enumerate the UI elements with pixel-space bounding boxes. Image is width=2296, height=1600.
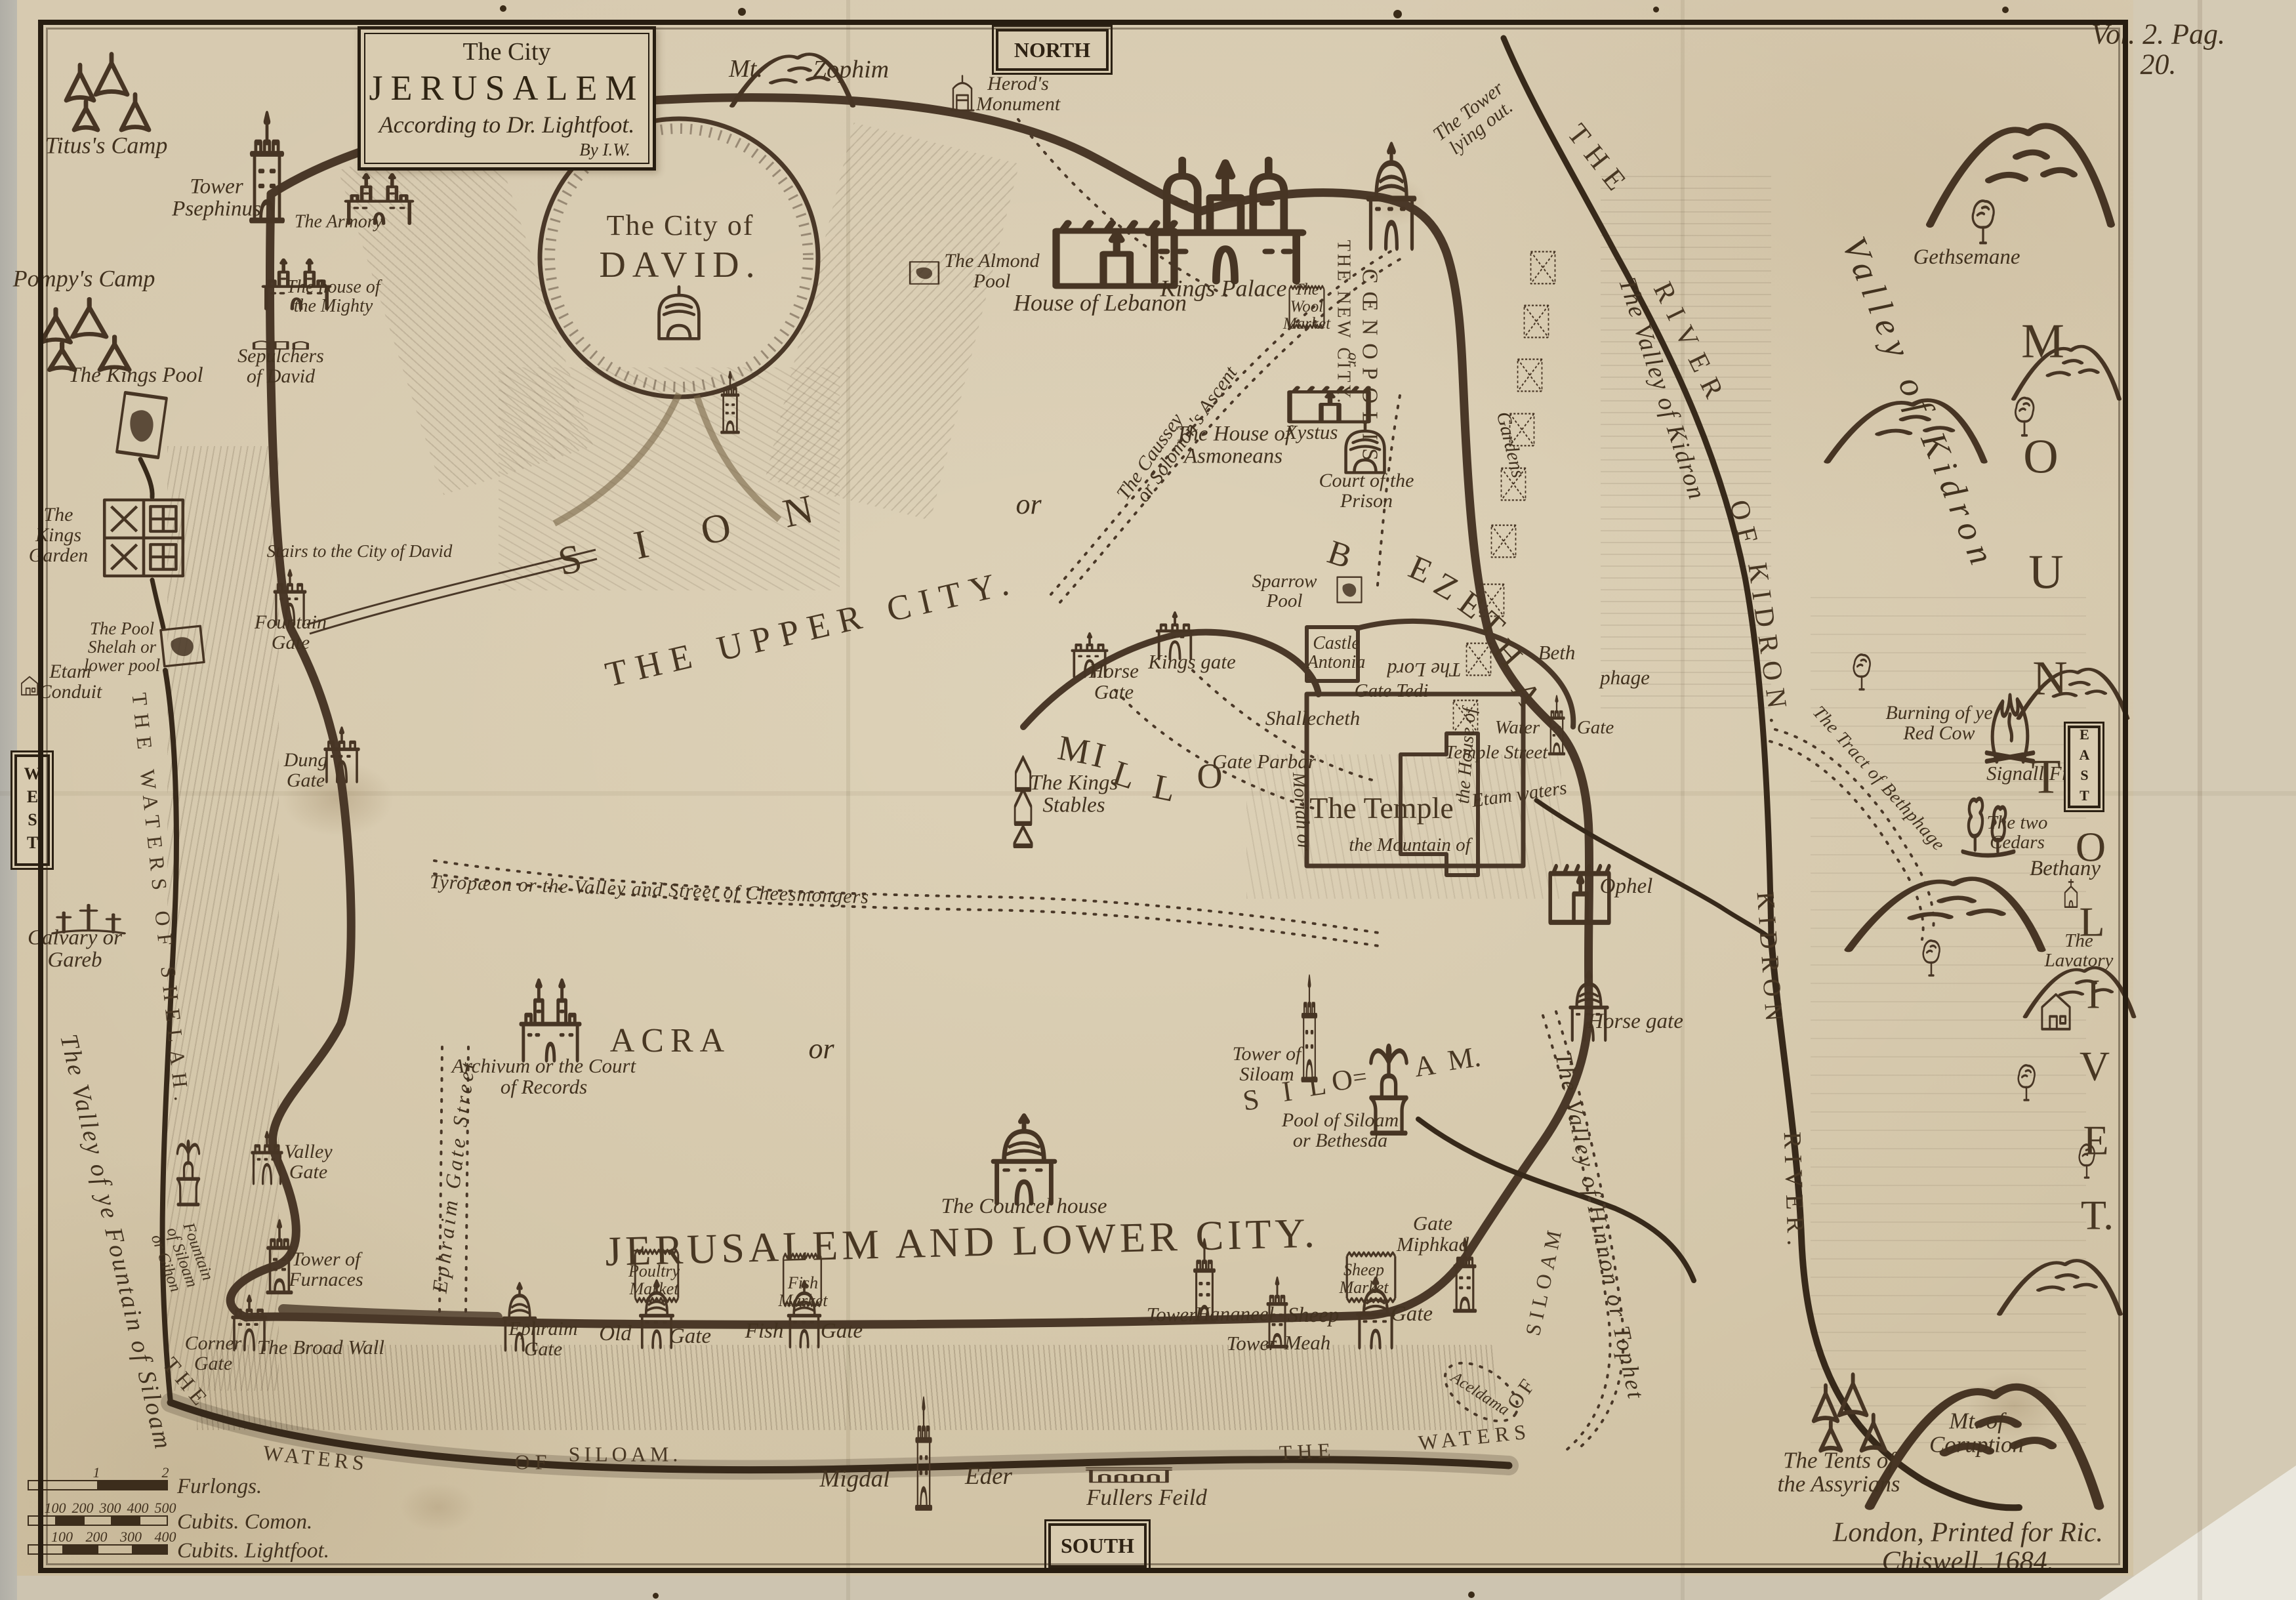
label-horse-gate-u: Horse Gate: [1089, 661, 1139, 703]
scale-label-cubits-common: Cubits. Comon.: [177, 1510, 312, 1534]
garden-plot-3-icon: [1518, 359, 1542, 392]
city-of-david-rings: [540, 119, 818, 523]
label-old: Old: [599, 1323, 632, 1345]
label-hananeel-1: Tower: [1147, 1304, 1197, 1325]
label-david: DAVID.: [599, 246, 761, 284]
label-olivet-o: O: [2076, 826, 2106, 870]
label-poultry-market: Poultry Market: [628, 1262, 680, 1298]
compass-north-label: NORTH: [1014, 38, 1090, 62]
scale-rule-cubits-common: [28, 1515, 168, 1526]
scale-ticks-cubits-lightfoot: 100200300400: [28, 1528, 165, 1544]
label-sheep: Sheep: [1288, 1304, 1340, 1326]
scale-segment: [140, 1517, 167, 1525]
stairs-to-david: [307, 550, 597, 634]
scale-tick-label: 500: [155, 1500, 176, 1517]
label-eder: Eder: [965, 1464, 1012, 1489]
herods-monument-icon: [951, 76, 974, 110]
label-siloam-1: SILOAM.: [569, 1443, 682, 1465]
label-olivet-l: L: [2079, 901, 2104, 945]
kings-garden-box-icon: [104, 500, 183, 576]
label-stairs: Stairs to the City of David: [267, 542, 453, 560]
label-corner-gate: Corner Gate: [185, 1333, 242, 1374]
cartouche-line-author: By I.W.: [361, 140, 653, 160]
label-gate-parbar: Gate Parbar: [1212, 751, 1316, 772]
label-gate-miphkad: Gate Miphkad: [1397, 1213, 1469, 1255]
label-zophim: Zophim: [813, 57, 889, 83]
label-shallecheth: Shallecheth: [1265, 708, 1361, 729]
olive-tree-4-icon: [2019, 1065, 2035, 1100]
label-fullers: Fullers Feild: [1086, 1486, 1207, 1509]
label-broad-wall: The Broad Wall: [257, 1337, 384, 1358]
scale-segment: [98, 1546, 133, 1553]
label-mount-o: O: [2023, 432, 2058, 483]
label-olivet-e: E: [2083, 1119, 2108, 1163]
label-the-temple: The Temple: [1309, 792, 1453, 824]
label-water-gate-1: Water: [1495, 718, 1540, 737]
label-tower-furnaces: Tower of Furnaces: [289, 1249, 363, 1290]
label-armory: The Armory: [295, 212, 382, 231]
label-calvary: Calvary or Gareb: [28, 927, 122, 972]
scale-segment: [98, 1481, 167, 1489]
scale-rule-cubits-lightfoot: [28, 1544, 168, 1555]
label-olivet-i: I: [2086, 973, 2100, 1017]
garden-plot-1-icon: [1531, 252, 1555, 284]
scale-tick-label: 1: [93, 1464, 100, 1481]
title-cartouche: The City JERUSALEM According to Dr. Ligh…: [358, 26, 656, 171]
scale-label-furlongs: Furlongs.: [177, 1475, 262, 1499]
label-fish-gate: Gate: [821, 1320, 863, 1342]
stairs-line-a: [307, 550, 596, 625]
furnaces-tower-icon: [267, 1221, 291, 1292]
fullers-aqueduct-icon: [1088, 1468, 1171, 1483]
label-titus-camp: Titus's Camp: [45, 133, 168, 157]
label-acra: ACRA: [610, 1023, 731, 1059]
label-ephraim-gate: Ephraim Gate: [509, 1319, 578, 1359]
label-mount-n: N: [2032, 654, 2067, 705]
label-sion-or: or: [1015, 489, 1041, 520]
siloam-tower-icon: [1302, 977, 1317, 1079]
label-archivum: Archivum or the Court of Records: [452, 1056, 636, 1097]
cartouche-line-jerusalem: JERUSALEM: [361, 68, 653, 108]
label-dung-gate: Dung Gate: [284, 750, 328, 790]
xystus-court-icon: [1290, 388, 1368, 422]
label-river-v: RIVER.: [1778, 1132, 1809, 1253]
scale-tick-label: 100: [45, 1500, 66, 1517]
tents-titus-icon: [66, 54, 149, 131]
kings-pool-basin-icon: [117, 393, 167, 458]
label-gate-tedi: Gate Tedi: [1355, 681, 1429, 701]
scale-segment: [56, 1517, 84, 1525]
label-kings-gate: Kings gate: [1148, 651, 1235, 672]
cartouche-line-lightfoot: According to Dr. Lightfoot.: [361, 111, 653, 138]
label-old-gate: Gate: [669, 1325, 711, 1347]
label-kings-pool: The Kings Pool: [68, 364, 203, 386]
scale-segment: [85, 1517, 112, 1525]
david-keep-icon: [659, 287, 699, 338]
label-mount-m: M: [2021, 317, 2064, 367]
scale-bar-cubits-lightfoot: 100200300400 Cubits. Lightfoot.: [28, 1528, 168, 1555]
tower-lying-out-icon: [1368, 145, 1414, 249]
label-fish: Fish: [745, 1320, 784, 1342]
scale-bar-cubits-common: 100200300400500 Cubits. Comon.: [28, 1500, 168, 1526]
scale-tick-label: 2: [162, 1464, 169, 1481]
label-gethsemane: Gethsemane: [1913, 246, 2020, 268]
shelah-pool-icon: [161, 626, 204, 666]
label-sepulchers: Sepulchers of David: [237, 346, 324, 386]
east-hill-5-icon: [1999, 1261, 2120, 1315]
olive-tree-3-icon: [1923, 941, 1940, 975]
label-xystus: Xystus: [1285, 422, 1338, 443]
gethsemane-tree-icon: [1973, 201, 1994, 243]
councel-house-icon: [993, 1116, 1055, 1203]
label-coenopolis: CŒNOPOLIS: [1358, 269, 1381, 468]
scale-tick-label: 100: [51, 1528, 73, 1546]
label-councel: The Councel house: [941, 1195, 1107, 1218]
label-migdal: Migdal: [820, 1467, 890, 1492]
scale-segment: [29, 1481, 98, 1489]
label-sparrow: Sparrow Pool: [1252, 571, 1317, 611]
label-tower-psephinus: Tower Psephinus: [172, 176, 261, 221]
label-silo-a: A: [1412, 1050, 1437, 1082]
compass-badge-east: EAST: [2068, 726, 2101, 808]
label-pool-siloam: Pool of Siloam or Bethesda: [1282, 1110, 1399, 1151]
scale-ticks-furlongs: 12: [28, 1464, 165, 1480]
label-pool-shelah: The Pool Shelah or lower pool: [84, 619, 160, 674]
scale-tick-label: 400: [127, 1500, 149, 1517]
garden-plot-6-icon: [1492, 525, 1516, 558]
label-olivet-t: T.: [2081, 1194, 2114, 1238]
label-millo-o: O: [1197, 758, 1223, 794]
label-mount-t: T: [2031, 752, 2060, 803]
archivum-castle-icon: [521, 981, 580, 1060]
label-kings-garden: The Kings Garden: [29, 504, 89, 566]
label-two-cedars: The two Cedars: [1987, 813, 2048, 852]
label-court-prison: Court of the Prison: [1319, 470, 1414, 511]
scale-segment: [64, 1546, 98, 1553]
label-ophel: Ophel: [1600, 875, 1653, 897]
scale-segment: [29, 1517, 56, 1525]
compass-east-label: EAST: [2076, 726, 2093, 808]
label-water-gate-2: Gate: [1577, 718, 1614, 737]
scale-segment: [29, 1546, 64, 1553]
etam-conduit-house-icon: [22, 677, 37, 695]
label-sheep-gate: Gate: [1391, 1303, 1433, 1325]
label-tents-assyrians: The Tents of the Assyrians: [1778, 1449, 1900, 1497]
label-fountain-gate: Fountain Gate: [255, 612, 327, 653]
label-meah-2: Meah: [1284, 1332, 1331, 1353]
almond-pool-box-icon: [910, 262, 939, 284]
label-imprint: London, Printed for Ric. Chiswell. 1684.: [1804, 1519, 2132, 1576]
compass-badge-north: NORTH: [996, 29, 1109, 71]
gihon-fountain-icon: [177, 1141, 199, 1204]
garden-plot-2-icon: [1525, 306, 1549, 338]
label-beth: Beth: [1538, 642, 1576, 663]
scale-tick-label: 200: [86, 1528, 108, 1546]
sparrow-pool-box-icon: [1338, 577, 1362, 603]
lavatory-house-icon: [2042, 995, 2070, 1029]
label-wool-market: The Wool Market: [1283, 281, 1330, 333]
migdal-tower-icon: [916, 1399, 932, 1508]
label-temple-street: Temple Street: [1445, 743, 1548, 762]
scale-ticks-cubits-common: 100200300400500: [28, 1500, 165, 1515]
tents-pompys-icon: [41, 299, 129, 370]
label-silo-o: O: [1330, 1064, 1355, 1097]
stairs-line-b: [310, 559, 597, 634]
label-new-city: THE NEW CITY.: [1334, 240, 1353, 405]
label-kings-stables: The Kings Stables: [1030, 772, 1118, 817]
label-herods: Herod's Monument: [976, 73, 1060, 114]
scale-tick-label: 300: [100, 1500, 121, 1517]
label-antonia: Castle Antonia: [1307, 634, 1366, 672]
compass-south-label: SOUTH: [1061, 1534, 1134, 1558]
label-acra-or: or: [808, 1034, 834, 1064]
scale-tick-label: 200: [72, 1500, 94, 1517]
label-hananeel-2: Hananeel: [1195, 1303, 1275, 1324]
label-house-mighty: The house of the Mighty: [286, 277, 380, 316]
scale-segment: [133, 1546, 167, 1553]
label-meah-1: Tower: [1227, 1333, 1277, 1354]
scale-segment: [112, 1517, 140, 1525]
scale-bar-furlongs: 12 Furlongs.: [28, 1464, 168, 1490]
scale-label-cubits-lightfoot: Cubits. Lightfoot.: [177, 1539, 329, 1563]
scale-tick-label: 400: [155, 1528, 176, 1546]
label-mount-u: U: [2028, 548, 2063, 598]
bethany-hill-icon: [1849, 879, 2041, 950]
david-road-west: [554, 394, 679, 523]
label-the-lord: The Lord: [1387, 659, 1461, 680]
compass-west-label: WEST: [22, 764, 42, 856]
etam-waters-channel: [1536, 800, 1771, 939]
label-mt-coruption: Mt. of Coruption: [1929, 1410, 2024, 1458]
compass-badge-west: WEST: [14, 754, 50, 866]
label-pompys-camp: Pompy's Camp: [13, 266, 155, 291]
compass-badge-south: SOUTH: [1048, 1523, 1147, 1568]
label-valley-gate: Valley Gate: [284, 1141, 332, 1182]
label-tower-siloam: Tower of Siloam: [1233, 1044, 1302, 1084]
cartouche-line-the-city: The City: [361, 37, 653, 66]
label-silo-m: M.: [1446, 1042, 1483, 1076]
label-of-1: OF: [515, 1451, 552, 1473]
shelah-stream-1: [140, 459, 152, 497]
label-phage: phage: [1600, 667, 1650, 688]
label-city-of: The City of: [607, 211, 754, 241]
map-engraving-canvas: [0, 0, 2296, 1600]
label-vol: Vol. 2. Pag. 20.: [2089, 19, 2227, 79]
scale-tick-label: 300: [120, 1528, 142, 1546]
northeast-hill-icon: [1930, 126, 2111, 225]
label-the-2: THE: [1279, 1439, 1336, 1464]
olive-tree-2-icon: [1854, 655, 1870, 689]
scale-rule-furlongs: [28, 1480, 168, 1490]
label-mt: Mt.: [729, 56, 763, 83]
label-horse-gate-l: Horse gate: [1588, 1010, 1683, 1033]
bethany-church-icon: [2065, 880, 2077, 907]
label-burning: Burning of ye Red Cow: [1885, 703, 1992, 743]
label-kings-palace: Kings Palace: [1160, 276, 1287, 300]
label-sheep-market: Sheep Market: [1339, 1261, 1388, 1296]
label-fish-market: Fish Market: [778, 1274, 827, 1309]
label-mountain-of: the Mountain of: [1349, 835, 1470, 855]
label-almond-pool: The Almond Pool: [944, 251, 1039, 291]
label-olivet-v: V: [2080, 1045, 2110, 1089]
label-millo-m: M: [1055, 729, 1092, 771]
